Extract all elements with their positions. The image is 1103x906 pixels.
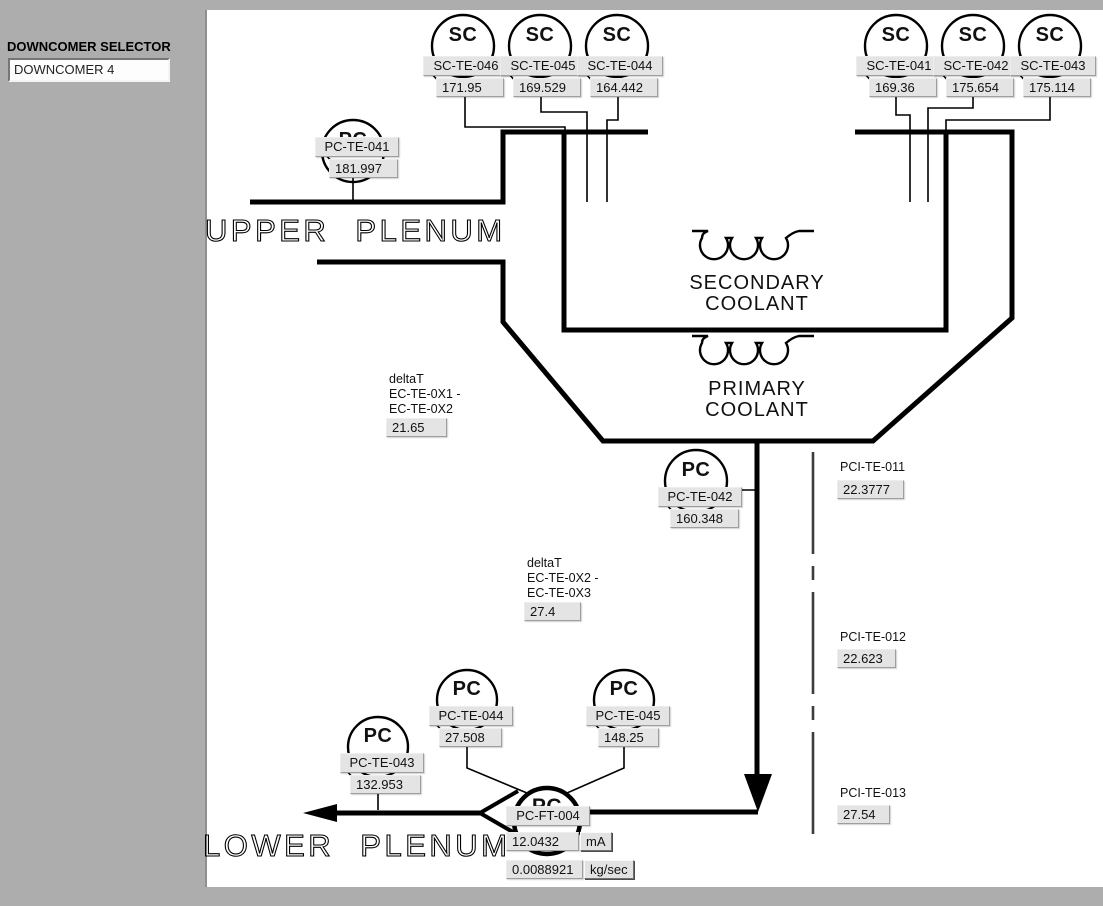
sc-te-045-value: 169.529 [513,78,581,97]
sc-te-043-bubble-letters: SC [1019,24,1081,47]
delta-t-1-label: deltaTEC-TE-0X1 -EC-TE-0X2 [389,372,461,417]
sc-te-043-tag: SC-TE-043 [1010,56,1096,76]
sc-te-044-value: 164.442 [590,78,658,97]
sc-te-046-value: 171.95 [436,78,504,97]
pc-te-042-tag: PC-TE-042 [658,487,742,507]
delta-t-2-value: 27.4 [524,602,581,621]
pc-te-045-bubble-letters: PC [593,678,655,701]
pc-te-041-tag: PC-TE-041 [315,137,399,157]
pc-ft-004-flow-value: 0.0088921 [506,860,583,879]
downcomer-selector-label: DOWNCOMER SELECTOR [7,39,171,54]
sc-te-045-bubble-letters: SC [509,24,571,47]
delta-t-1-line2: EC-TE-0X2 [389,402,453,416]
sc-te-042-value: 175.654 [946,78,1014,97]
sc-te-043-value: 175.114 [1023,78,1091,97]
pc-te-043-value: 132.953 [350,775,421,794]
delta-t-1-value: 21.65 [386,418,447,437]
pci-te-013-value: 27.54 [837,805,890,824]
sc-te-042-bubble-letters: SC [942,24,1004,47]
sc-te-046-bubble-letters: SC [432,24,494,47]
pci-te-012-value: 22.623 [837,649,896,668]
pc-te-044-value: 27.508 [439,728,502,747]
pc-te-041-value: 181.997 [329,159,398,178]
pc-ft-004-current-value: 12.0432 [506,832,579,851]
sc-te-045-tag: SC-TE-045 [500,56,586,76]
sc-te-041-value: 169.36 [869,78,937,97]
pc-te-042-bubble-letters: PC [665,459,727,482]
pc-te-045-tag: PC-TE-045 [586,706,670,726]
pc-te-044-tag: PC-TE-044 [429,706,513,726]
delta-t-2-title: deltaT [527,556,562,570]
sc-te-046-tag: SC-TE-046 [423,56,509,76]
delta-t-1-line1: EC-TE-0X1 - [389,387,461,401]
delta-t-2-line1: EC-TE-0X2 - [527,571,599,585]
app-window: UPPER PLENUM LOWER PLENUM SECONDARY COOL… [0,0,1103,906]
sc-te-041-bubble-letters: SC [865,24,927,47]
delta-t-2-label: deltaTEC-TE-0X2 -EC-TE-0X3 [527,556,599,601]
downcomer-selector-input[interactable]: DOWNCOMER 4 [8,58,170,82]
pci-te-011-tag: PCI-TE-011 [840,460,905,475]
pci-te-012-tag: PCI-TE-012 [840,630,906,645]
delta-t-2-line2: EC-TE-0X3 [527,586,591,600]
pci-te-013-tag: PCI-TE-013 [840,786,906,801]
pc-te-045-value: 148.25 [598,728,659,747]
pc-ft-004-tag: PC-FT-004 [506,806,590,826]
sc-te-041-tag: SC-TE-041 [856,56,942,76]
pc-te-042-value: 160.348 [670,509,739,528]
sc-te-042-tag: SC-TE-042 [933,56,1019,76]
sc-te-044-bubble-letters: SC [586,24,648,47]
pc-te-044-bubble-letters: PC [436,678,498,701]
pc-ft-004-current-unit-button[interactable]: mA [580,832,612,851]
pc-te-043-tag: PC-TE-043 [340,753,424,773]
pci-te-011-value: 22.3777 [837,480,904,499]
pc-ft-004-flow-unit-button[interactable]: kg/sec [584,860,634,879]
sc-te-044-tag: SC-TE-044 [577,56,663,76]
delta-t-1-title: deltaT [389,372,424,386]
pc-te-043-bubble-letters: PC [347,725,409,748]
